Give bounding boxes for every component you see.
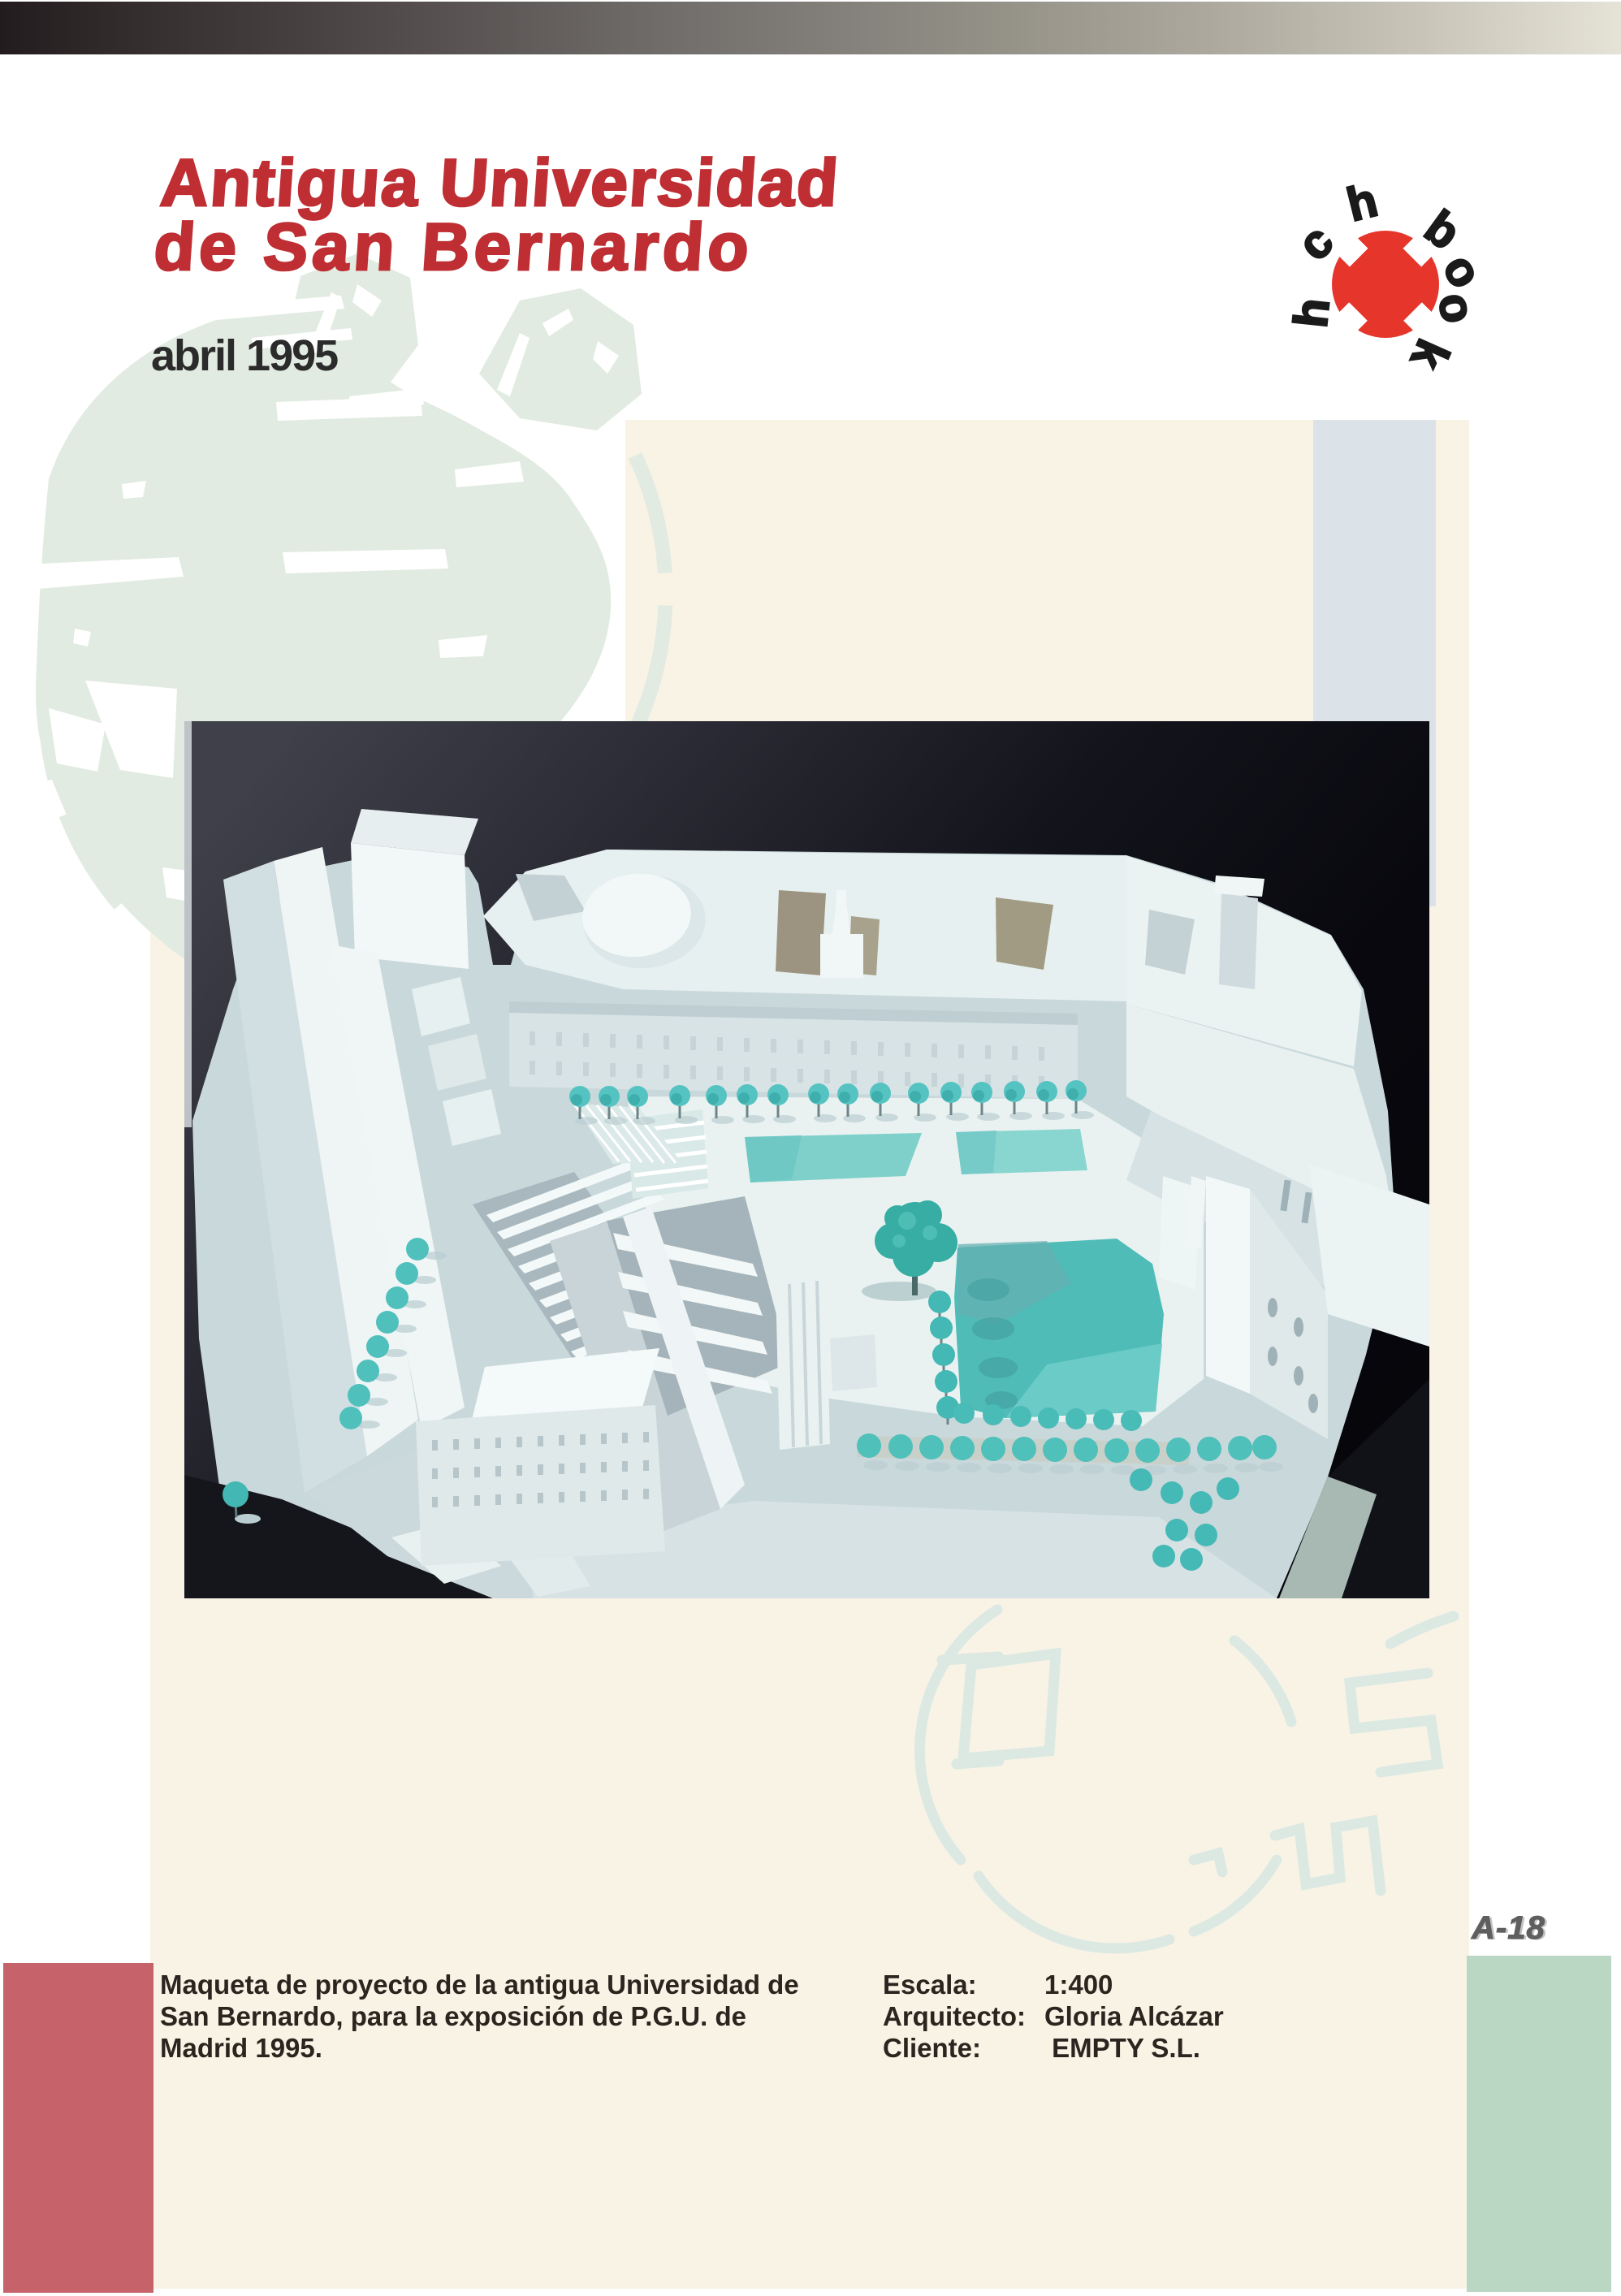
svg-text:h: h bbox=[1342, 174, 1382, 232]
svg-text:c: c bbox=[1287, 214, 1343, 270]
svg-text:k: k bbox=[1400, 331, 1459, 378]
svg-text:h: h bbox=[1284, 296, 1339, 330]
